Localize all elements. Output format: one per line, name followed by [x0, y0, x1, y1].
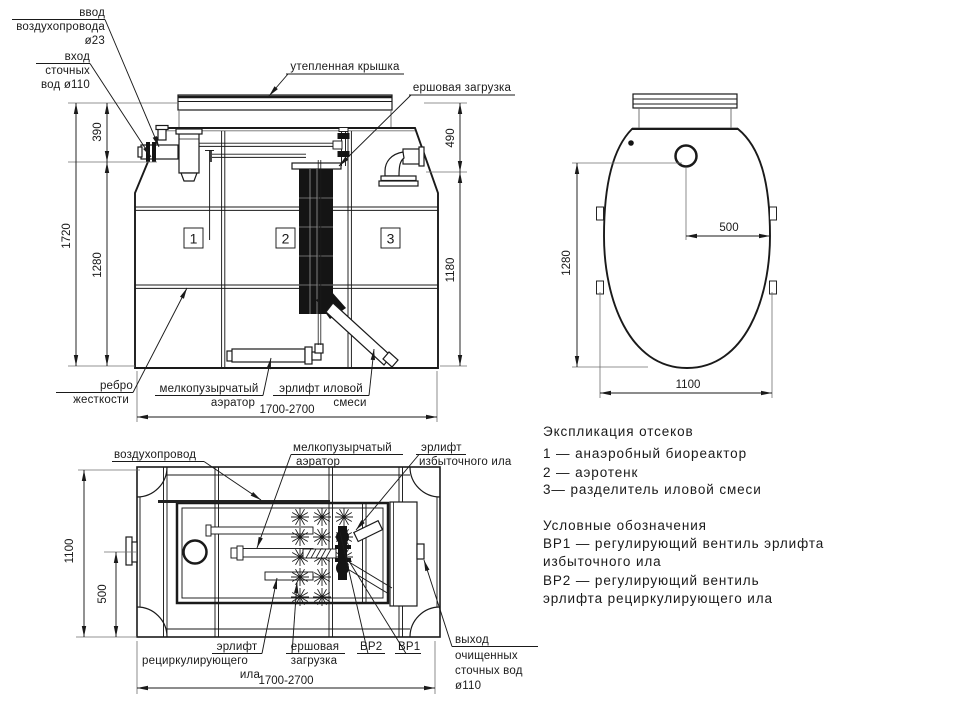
label-outlet-4: ø110 [455, 680, 481, 692]
label-rib-1: ребро [100, 380, 133, 392]
label-sewage-inlet-2: сточных [45, 65, 90, 77]
excess-airlift-pipe [354, 521, 383, 542]
legend-sections-title: Экспликация отсеков [543, 424, 694, 439]
drawing-canvas: 1 2 3 [0, 0, 953, 710]
dim-right-body: 1180 [445, 258, 457, 283]
arrowhead [105, 151, 109, 162]
compartment-3-number: 3 [387, 231, 395, 247]
arrowhead [114, 626, 118, 637]
arrowhead [426, 415, 437, 419]
label-vr2: ВР2 [360, 641, 382, 653]
arrowhead [114, 552, 118, 563]
engineering-drawing-page: 1 2 3 [0, 0, 953, 710]
dim-body-height: 1280 [92, 252, 104, 278]
label-recirc-airlift-1: эрлифт [217, 641, 258, 653]
vent-dot [628, 140, 634, 146]
label-aerator-plan-2: аэратор [296, 456, 340, 468]
arrowhead [82, 470, 86, 481]
arrowhead [105, 355, 109, 366]
arrowhead [137, 415, 148, 419]
arrowhead [686, 234, 697, 238]
arrowhead [257, 537, 263, 548]
label-excess-airlift-1: эрлифт [421, 442, 462, 454]
legend-section-1: 1 — анаэробный биореактор [543, 446, 747, 461]
arrowhead [137, 686, 148, 690]
label-sewage-inlet-1: вход [65, 51, 90, 63]
front-view: 1 2 3 [12, 7, 515, 422]
air-piping [198, 143, 333, 162]
label-rib-2: жесткости [73, 394, 129, 406]
label-aerator-front-1: мелкопузырчатый [160, 383, 259, 395]
legend-symbols-title: Условные обозначения [543, 518, 707, 533]
compartment-1-marker: 1 [184, 228, 203, 248]
dim-top-height: 390 [92, 122, 104, 141]
dim-front-width: 1700-2700 [260, 404, 315, 416]
label-brush-plan-1: ершовая [291, 641, 339, 653]
label-cover: утепленная крышка [290, 61, 400, 73]
sludge-airlift-pipe [316, 291, 398, 367]
arrowhead [424, 686, 435, 690]
arrowhead [105, 103, 109, 114]
compartment-3-marker: 3 [381, 228, 400, 248]
label-air-inlet-3: ø23 [85, 35, 105, 47]
label-sludge-airlift-1: эрлифт иловой [279, 383, 363, 395]
compartment-2-marker: 2 [276, 228, 295, 248]
compartment-1-number: 1 [190, 231, 198, 247]
label-air-inlet-1: ввод [79, 7, 105, 19]
brush-media-column [292, 163, 341, 314]
arrowhead [575, 356, 579, 367]
label-brush-front: ершовая загрузка [413, 82, 512, 94]
arrowhead [759, 234, 770, 238]
label-aerator-front-2: аэратор [211, 397, 255, 409]
arrowhead [575, 163, 579, 174]
legend-symbol-4: эрлифта рециркулирующего ила [543, 591, 773, 606]
legend-symbol-2: избыточного ила [543, 554, 662, 569]
plan-view: 1100 500 1700-2700 воздухопровод мелкопу… [64, 442, 538, 694]
dim-plan-width: 1700-2700 [259, 675, 314, 687]
dim-plan-height: 1100 [64, 539, 76, 564]
arrowhead [458, 355, 462, 366]
dim-end-height: 1280 [561, 250, 573, 276]
legend-block: Экспликация отсеков 1 — анаэробный биоре… [543, 424, 824, 606]
legend-section-2: 2 — аэротенк [543, 465, 638, 480]
label-outlet-2: очищенных [455, 650, 518, 662]
end-view: 1280 500 1100 [561, 94, 777, 398]
arrowhead [600, 391, 611, 395]
plan-opening [184, 541, 207, 564]
arrowhead [761, 391, 772, 395]
outlet-elbow [379, 147, 424, 186]
dim-end-offset: 500 [719, 222, 738, 234]
arrowhead [458, 172, 462, 183]
arrowhead [180, 288, 187, 299]
arrowhead [251, 492, 261, 500]
egg-outline [604, 129, 770, 368]
arrowhead [458, 161, 462, 172]
dim-end-width: 1100 [676, 379, 701, 391]
label-air-inlet-2: воздухопровода [16, 21, 105, 33]
label-recirc-airlift-3: ила [240, 669, 261, 681]
outlet-chamber [390, 502, 417, 606]
compartment-2-number: 2 [282, 231, 290, 247]
label-aerator-plan-1: мелкопузырчатый [293, 442, 392, 454]
arrowhead [105, 162, 109, 173]
label-sewage-inlet-3: вод ø110 [41, 79, 90, 91]
dim-plan-offset: 500 [97, 584, 109, 603]
legend-symbol-1: ВР1 — регулирующий вентиль эрлифта [543, 536, 824, 551]
arrowhead [74, 103, 78, 114]
arrowhead [458, 103, 462, 114]
dim-right-top: 490 [445, 128, 457, 147]
arrowhead [74, 355, 78, 366]
arrowhead [424, 560, 429, 571]
label-outlet-3: сточных вод [455, 665, 523, 677]
dim-total-height: 1720 [61, 223, 73, 249]
label-outlet-1: выход [455, 634, 489, 646]
label-excess-airlift-2: избыточного ила [419, 456, 512, 468]
legend-section-3: 3— разделитель иловой смеси [543, 482, 762, 497]
legend-symbol-3: ВР2 — регулирующий вентиль [543, 573, 760, 588]
label-vr1: ВР1 [398, 641, 420, 653]
arrowhead [82, 626, 86, 637]
outlet-stub [417, 544, 424, 559]
label-brush-plan-2: загрузка [291, 655, 338, 667]
label-recirc-airlift-2: рециркулирующего [142, 655, 248, 667]
label-sludge-airlift-2: смеси [333, 397, 366, 409]
label-air-duct: воздухопровод [114, 449, 196, 461]
